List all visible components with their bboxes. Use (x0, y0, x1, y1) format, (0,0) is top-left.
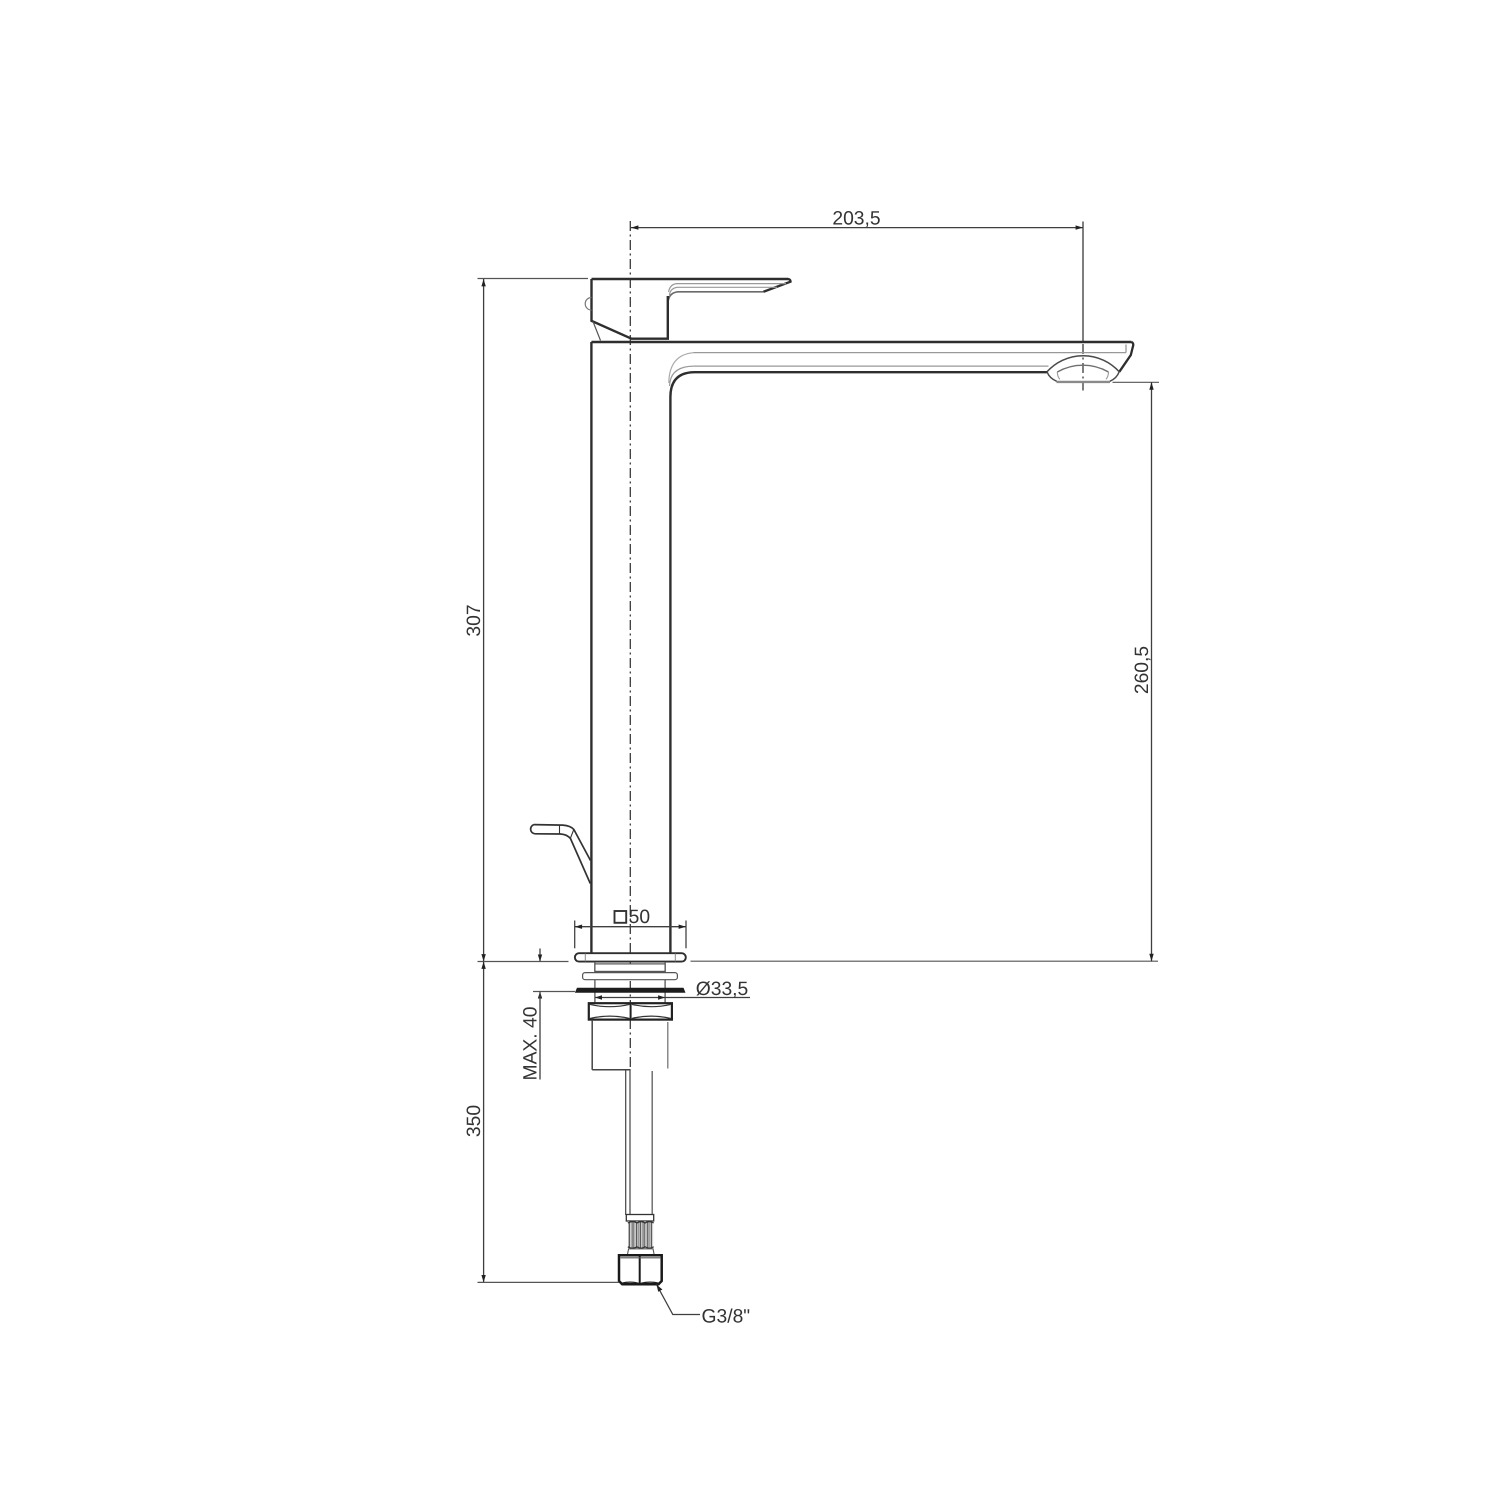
svg-text:MAX. 40: MAX. 40 (521, 1007, 542, 1081)
svg-text:Ø33,5: Ø33,5 (696, 979, 749, 1000)
svg-text:260,5: 260,5 (1132, 646, 1153, 694)
svg-text:203,5: 203,5 (832, 209, 880, 230)
svg-text:350: 350 (464, 1105, 485, 1137)
svg-text:50: 50 (629, 907, 650, 928)
svg-text:307: 307 (464, 604, 485, 636)
svg-text:G3/8": G3/8" (702, 1307, 751, 1328)
